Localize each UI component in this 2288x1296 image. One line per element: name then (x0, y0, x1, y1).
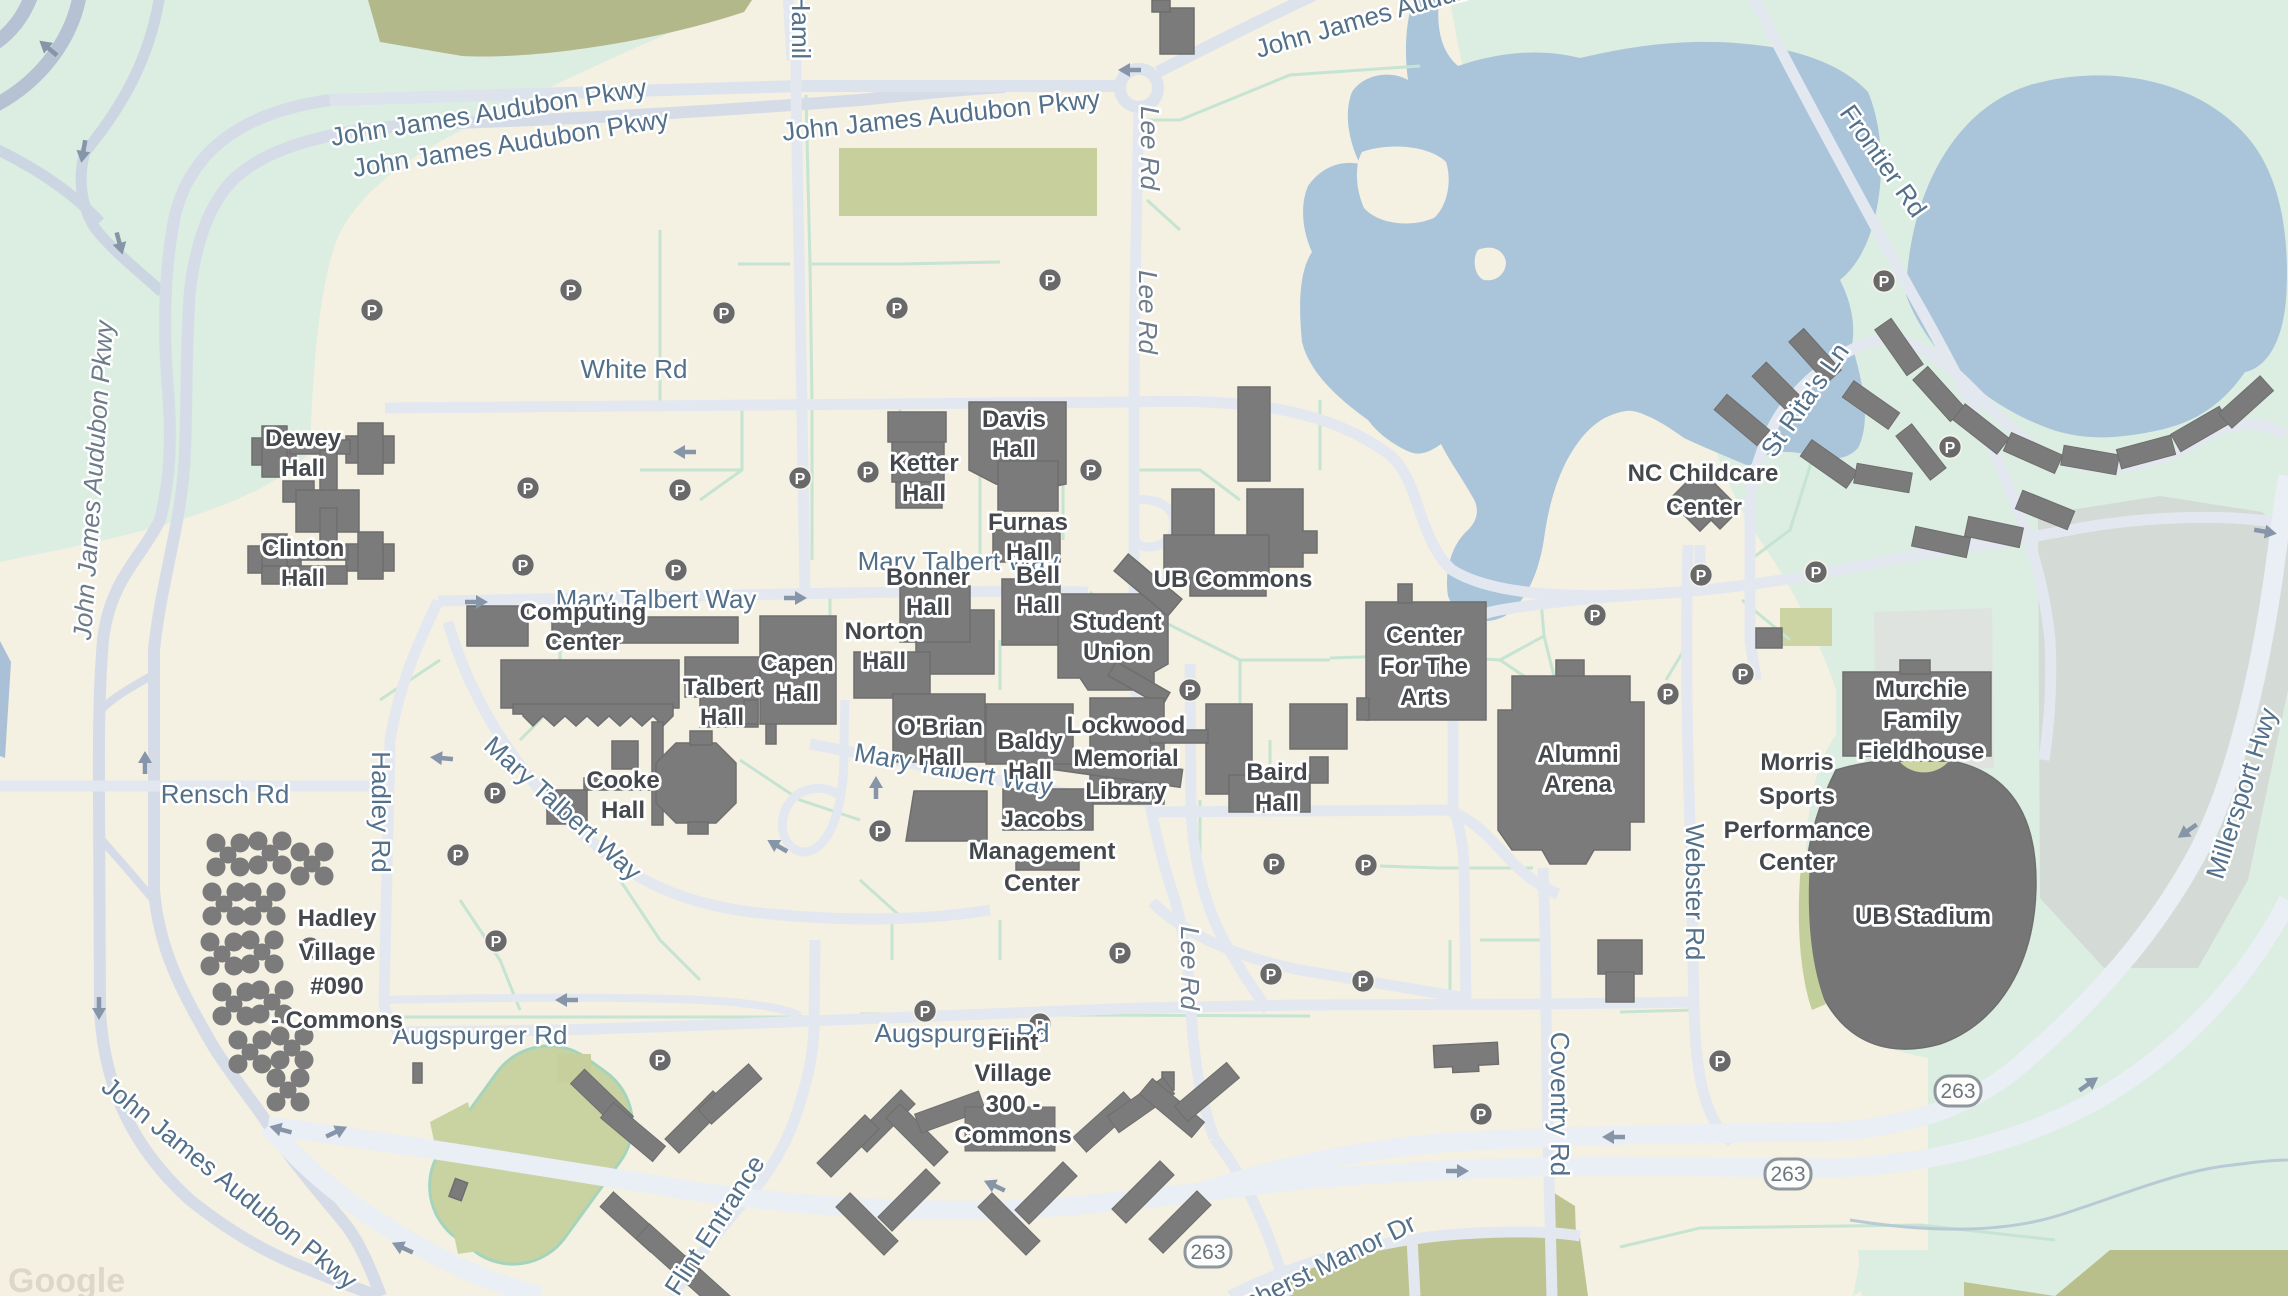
svg-text:Family: Family (1883, 707, 1960, 734)
svg-text:Hall: Hall (700, 704, 744, 731)
svg-text:Augspurger Rd: Augspurger Rd (393, 1020, 568, 1050)
svg-text:Hall: Hall (601, 797, 645, 824)
svg-text:Google: Google (8, 1262, 125, 1296)
svg-text:Performance: Performance (1724, 817, 1871, 844)
svg-text:Village: Village (299, 939, 376, 966)
svg-text:UB Commons: UB Commons (1154, 566, 1313, 593)
svg-text:Webster Rd: Webster Rd (1680, 824, 1710, 961)
svg-text:Coventry Rd: Coventry Rd (1545, 1032, 1575, 1177)
svg-text:Hall: Hall (1008, 758, 1052, 785)
svg-text:Dewey: Dewey (265, 425, 342, 452)
svg-text:Murchie: Murchie (1875, 676, 1967, 703)
svg-text:Hall: Hall (862, 648, 906, 675)
svg-text:Center: Center (1004, 870, 1080, 897)
svg-text:Alumni: Alumni (1537, 741, 1618, 768)
svg-text:Flint: Flint (988, 1029, 1039, 1056)
svg-text:Computing: Computing (520, 599, 647, 626)
svg-text:Lee Rd: Lee Rd (1135, 106, 1165, 191)
svg-text:Rensch Rd: Rensch Rd (161, 779, 290, 809)
svg-text:Bell: Bell (1016, 562, 1060, 589)
svg-text:Hall: Hall (281, 455, 325, 482)
svg-text:Management: Management (969, 838, 1116, 865)
svg-text:Hall: Hall (906, 594, 950, 621)
svg-text:Capen: Capen (760, 650, 833, 677)
svg-text:Memorial: Memorial (1073, 745, 1178, 772)
svg-text:- Commons: - Commons (271, 1007, 403, 1034)
svg-text:Union: Union (1083, 639, 1151, 666)
svg-text:Center: Center (1759, 849, 1835, 876)
svg-text:Center: Center (545, 629, 621, 656)
svg-text:Hamil: Hamil (786, 0, 816, 59)
svg-text:Library: Library (1085, 778, 1167, 805)
svg-text:Clinton: Clinton (262, 535, 345, 562)
svg-text:Baldy: Baldy (997, 728, 1063, 755)
svg-text:NC Childcare: NC Childcare (1628, 460, 1779, 487)
svg-text:Hadley: Hadley (298, 905, 377, 932)
svg-text:Talbert: Talbert (683, 674, 761, 701)
svg-text:Lockwood: Lockwood (1067, 712, 1186, 739)
svg-text:Hall: Hall (1255, 790, 1299, 817)
svg-text:Arena: Arena (1544, 771, 1613, 798)
svg-text:Lee Rd: Lee Rd (1175, 926, 1205, 1011)
svg-text:Lee Rd: Lee Rd (1133, 270, 1163, 355)
svg-text:Baird: Baird (1246, 759, 1307, 786)
svg-text:UB Stadium: UB Stadium (1855, 903, 1991, 930)
svg-text:Hall: Hall (992, 436, 1036, 463)
svg-text:300 -: 300 - (986, 1091, 1041, 1118)
svg-text:Arts: Arts (1400, 684, 1448, 711)
svg-text:Norton: Norton (845, 618, 924, 645)
svg-text:Bonner: Bonner (886, 564, 970, 591)
svg-text:O'Brian: O'Brian (897, 714, 983, 741)
svg-text:Hall: Hall (918, 744, 962, 771)
svg-text:Village: Village (975, 1060, 1052, 1087)
svg-text:For The: For The (1380, 653, 1468, 680)
svg-text:Student: Student (1072, 609, 1161, 636)
svg-text:Furnas: Furnas (988, 509, 1068, 536)
svg-text:Hall: Hall (775, 680, 819, 707)
svg-text:Commons: Commons (954, 1122, 1071, 1149)
svg-text:Morris: Morris (1760, 749, 1833, 776)
svg-text:Hall: Hall (1016, 592, 1060, 619)
svg-text:Sports: Sports (1759, 783, 1835, 810)
svg-text:Davis: Davis (982, 406, 1046, 433)
svg-text:Ketter: Ketter (889, 450, 958, 477)
svg-text:Cooke: Cooke (586, 767, 659, 794)
svg-text:Hall: Hall (902, 480, 946, 507)
svg-text:#090: #090 (310, 973, 363, 1000)
svg-text:Fieldhouse: Fieldhouse (1858, 738, 1985, 765)
svg-text:Hadley Rd: Hadley Rd (366, 751, 396, 872)
svg-text:Jacobs: Jacobs (1001, 806, 1084, 833)
svg-text:White Rd: White Rd (581, 354, 688, 384)
svg-text:Hall: Hall (281, 565, 325, 592)
svg-text:Center: Center (1386, 622, 1462, 649)
svg-text:Center: Center (1666, 494, 1742, 521)
